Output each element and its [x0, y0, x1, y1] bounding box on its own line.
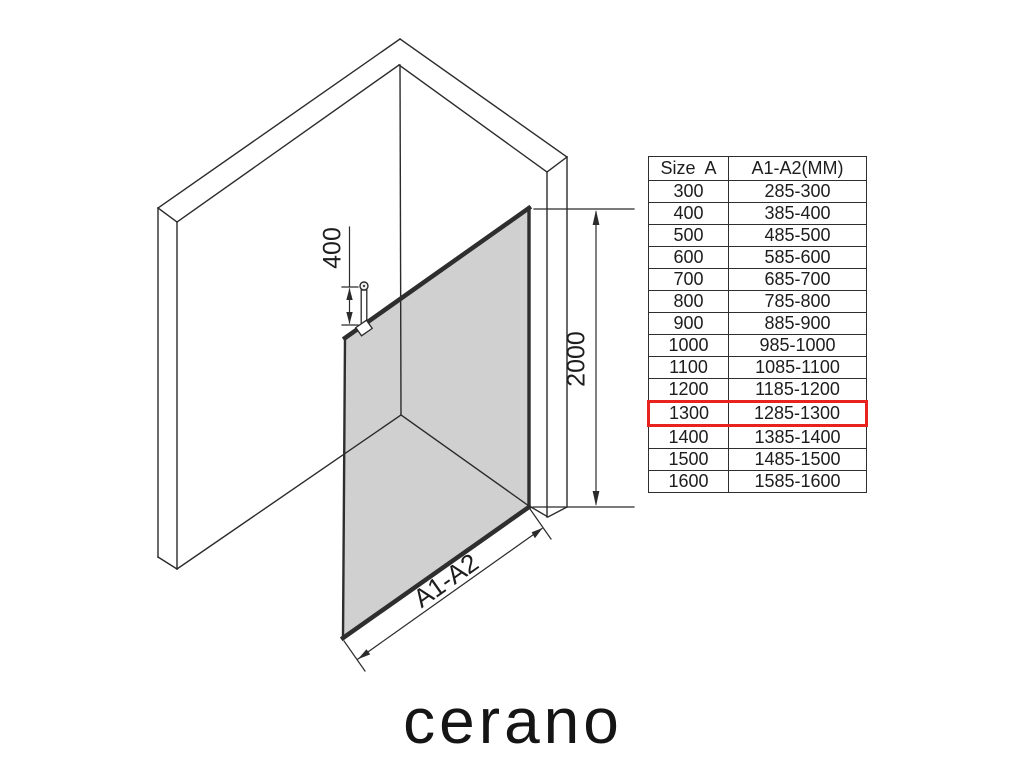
size-cell: 300: [649, 181, 729, 203]
dimension-400-label: 400: [319, 227, 347, 269]
range-cell: 785-800: [729, 291, 867, 313]
size-cell: 400: [649, 203, 729, 225]
size-row-500: 500485-500: [649, 225, 867, 247]
size-table-header-row: Size A A1-A2(MM): [649, 157, 867, 181]
size-cell: 900: [649, 313, 729, 335]
size-row-1400: 14001385-1400: [649, 426, 867, 449]
size-row-1500: 15001485-1500: [649, 449, 867, 471]
range-cell: 585-600: [729, 247, 867, 269]
size-cell: 600: [649, 247, 729, 269]
size-row-1100: 11001085-1100: [649, 357, 867, 379]
size-cell: 1200: [649, 379, 729, 402]
support-bar: [356, 282, 372, 336]
dimension-400: 400: [319, 227, 358, 325]
range-cell: 1585-1600: [729, 471, 867, 493]
size-row-300: 300285-300: [649, 181, 867, 203]
size-cell: 1400: [649, 426, 729, 449]
size-cell: 700: [649, 269, 729, 291]
range-cell: 1185-1200: [729, 379, 867, 402]
range-cell: 885-900: [729, 313, 867, 335]
size-row-1000: 1000985-1000: [649, 335, 867, 357]
range-cell: 485-500: [729, 225, 867, 247]
size-row-1300: 13001285-1300: [649, 402, 867, 426]
size-table: Size A A1-A2(MM) 300285-300400385-400500…: [647, 156, 868, 493]
page: 400 2000 A1-A2: [0, 0, 1024, 768]
shower-diagram: 400 2000 A1-A2: [0, 0, 1024, 768]
size-cell: 1600: [649, 471, 729, 493]
size-cell: 800: [649, 291, 729, 313]
range-cell: 685-700: [729, 269, 867, 291]
range-cell: 1485-1500: [729, 449, 867, 471]
size-column-header: Size A: [649, 157, 729, 181]
size-cell: 1000: [649, 335, 729, 357]
range-cell: 1085-1100: [729, 357, 867, 379]
size-row-600: 600585-600: [649, 247, 867, 269]
wall-corner-line: [400, 65, 401, 415]
size-row-1200: 12001185-1200: [649, 379, 867, 402]
dimension-2000-label: 2000: [563, 331, 591, 387]
range-column-header: A1-A2(MM): [729, 157, 867, 181]
size-row-800: 800785-800: [649, 291, 867, 313]
size-row-900: 900885-900: [649, 313, 867, 335]
size-row-700: 700685-700: [649, 269, 867, 291]
size-table-container: Size A A1-A2(MM) 300285-300400385-400500…: [647, 156, 868, 493]
range-cell: 385-400: [729, 203, 867, 225]
range-cell: 285-300: [729, 181, 867, 203]
dimension-2000: 2000: [533, 209, 634, 507]
brand-logo: cerano: [403, 691, 623, 751]
size-cell: 1500: [649, 449, 729, 471]
size-cell: 1300: [649, 402, 729, 426]
range-cell: 1385-1400: [729, 426, 867, 449]
range-cell: 1285-1300: [729, 402, 867, 426]
range-cell: 985-1000: [729, 335, 867, 357]
size-cell: 1100: [649, 357, 729, 379]
size-row-1600: 16001585-1600: [649, 471, 867, 493]
size-row-400: 400385-400: [649, 203, 867, 225]
size-cell: 500: [649, 225, 729, 247]
